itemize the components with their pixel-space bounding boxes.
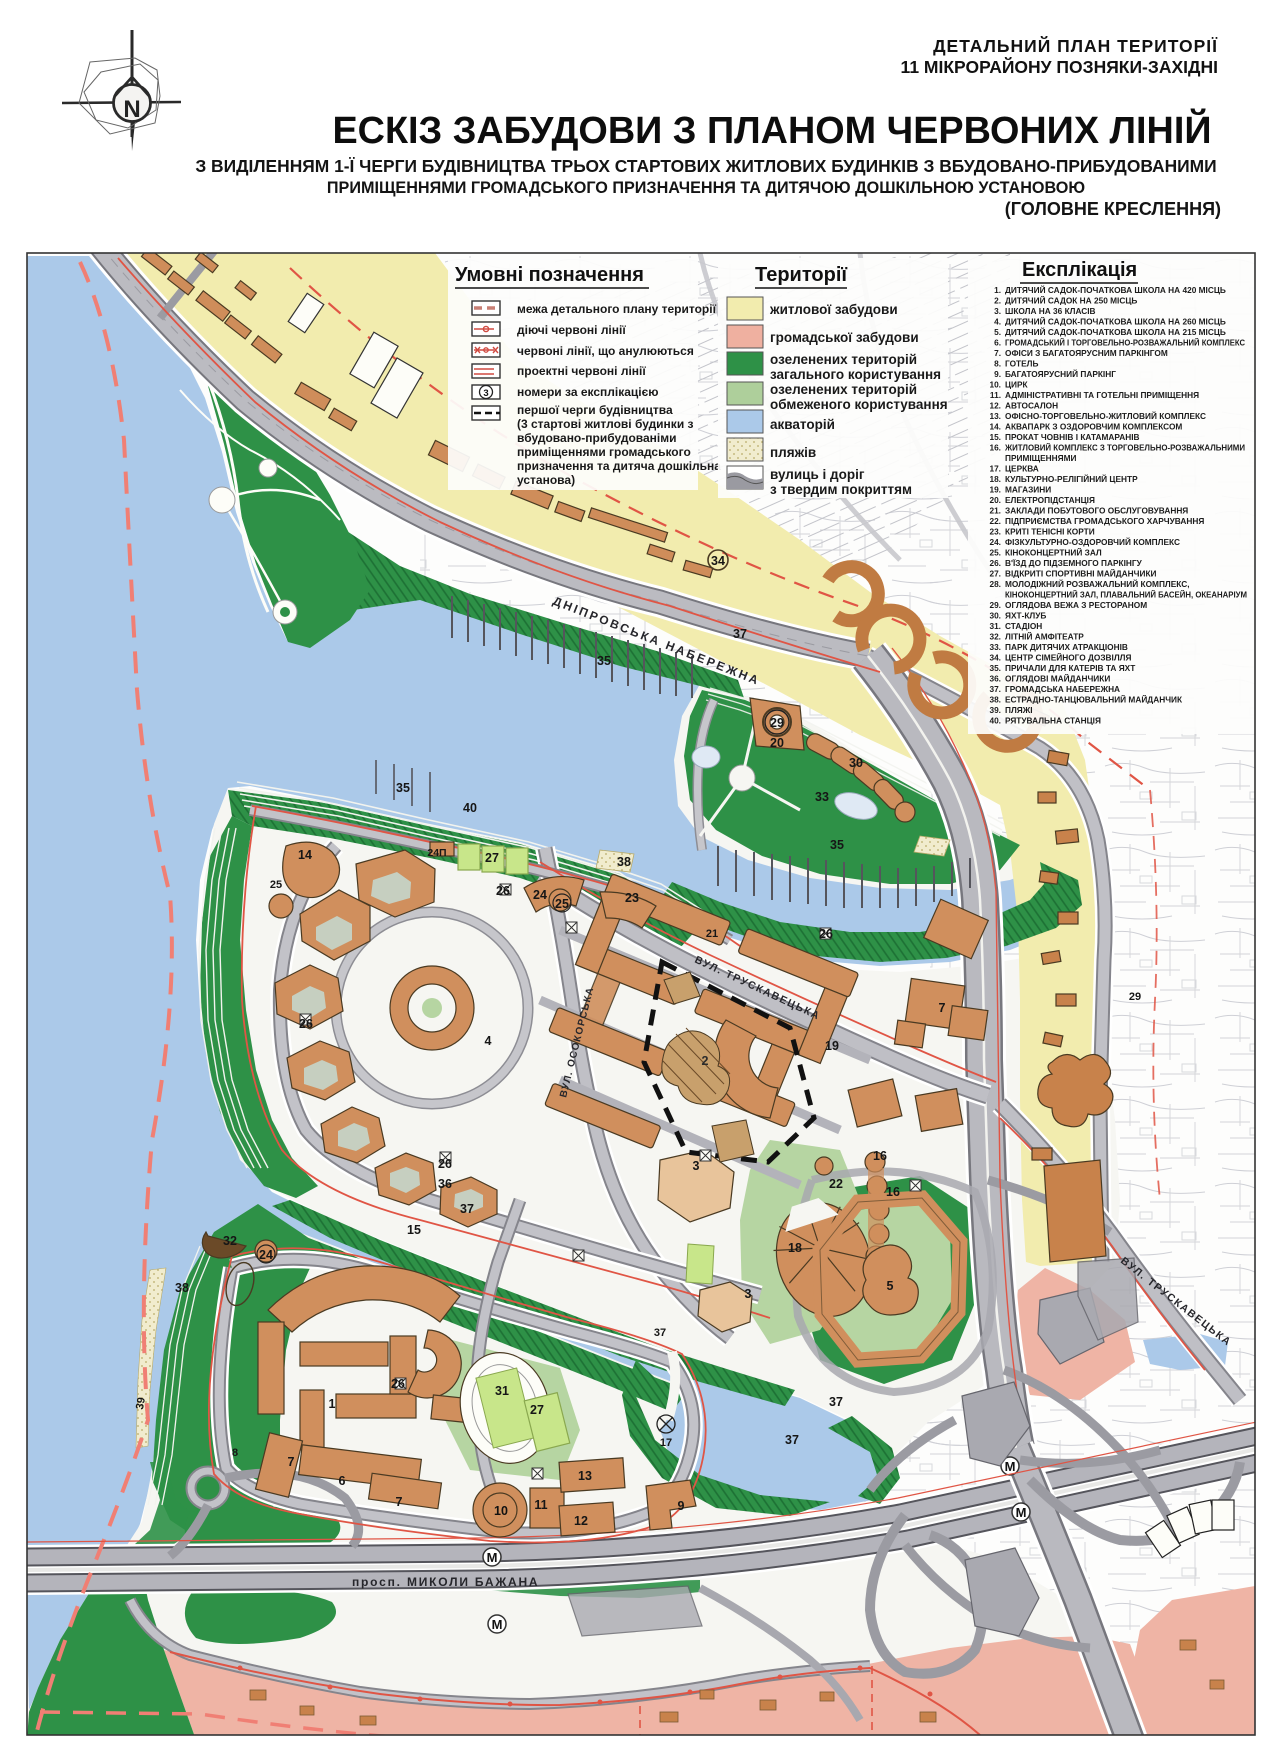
svg-text:22.: 22. [989, 516, 1001, 526]
svg-text:проектні червоні лінії: проектні червоні лінії [517, 364, 646, 378]
svg-text:19.: 19. [989, 485, 1001, 495]
svg-text:25: 25 [270, 879, 282, 891]
svg-text:16: 16 [886, 1185, 900, 1199]
svg-text:32.: 32. [989, 632, 1001, 642]
svg-text:36.: 36. [989, 674, 1001, 684]
svg-text:24П: 24П [427, 847, 446, 859]
svg-text:12: 12 [574, 1514, 588, 1528]
svg-text:діючі червоні лінії: діючі червоні лінії [517, 323, 626, 337]
svg-text:N: N [123, 96, 140, 123]
svg-text:М: М [492, 1617, 503, 1632]
svg-text:ПАРК ДИТЯЧИХ АТРАКЦІОНІВ: ПАРК ДИТЯЧИХ АТРАКЦІОНІВ [1005, 642, 1128, 652]
svg-text:26: 26 [819, 927, 833, 941]
svg-text:34: 34 [711, 554, 725, 568]
svg-text:37: 37 [829, 1395, 843, 1409]
svg-text:21.: 21. [989, 506, 1001, 516]
svg-text:35: 35 [597, 654, 611, 668]
svg-text:31.: 31. [989, 621, 1001, 631]
svg-text:37: 37 [785, 1433, 799, 1447]
svg-text:ШКОЛА НА 36 КЛАСІВ: ШКОЛА НА 36 КЛАСІВ [1005, 306, 1096, 316]
svg-text:27: 27 [530, 1403, 544, 1417]
svg-text:35: 35 [830, 838, 844, 852]
svg-text:В'ЇЗД ДО ПІДЗЕМНОГО ПАРКІНГУ: В'ЇЗД ДО ПІДЗЕМНОГО ПАРКІНГУ [1005, 558, 1143, 568]
svg-text:Експлікація: Експлікація [1022, 259, 1137, 281]
svg-text:8: 8 [232, 1447, 238, 1459]
svg-text:ПЛЯЖІ: ПЛЯЖІ [1005, 705, 1033, 715]
svg-text:24: 24 [533, 888, 547, 902]
svg-text:27: 27 [485, 851, 499, 865]
svg-text:6: 6 [339, 1474, 346, 1488]
svg-text:9.: 9. [994, 369, 1001, 379]
svg-text:21: 21 [706, 928, 718, 940]
svg-text:19: 19 [825, 1039, 839, 1053]
svg-text:3: 3 [745, 1287, 752, 1301]
svg-text:З ВИДІЛЕННЯМ 1-Ї ЧЕРГИ БУДІВНИ: З ВИДІЛЕННЯМ 1-Ї ЧЕРГИ БУДІВНИЦТВА ТРЬОХ… [195, 156, 1216, 176]
svg-text:ДИТЯЧИЙ САДОК НА 250 МІСЦЬ: ДИТЯЧИЙ САДОК НА 250 МІСЦЬ [1005, 295, 1137, 306]
svg-text:7: 7 [288, 1455, 295, 1469]
svg-text:36: 36 [438, 1177, 452, 1191]
svg-text:20.: 20. [989, 495, 1001, 505]
svg-text:Території: Території [755, 264, 847, 286]
svg-text:31: 31 [495, 1384, 509, 1398]
svg-text:загального користування: загального користування [770, 367, 941, 382]
svg-text:4: 4 [485, 1034, 492, 1048]
svg-text:МАГАЗИНИ: МАГАЗИНИ [1005, 485, 1051, 495]
svg-text:КУЛЬТУРНО-РЕЛІГІЙНИЙ ЦЕНТР: КУЛЬТУРНО-РЕЛІГІЙНИЙ ЦЕНТР [1005, 473, 1138, 484]
svg-text:з твердим покриттям: з твердим покриттям [770, 482, 912, 497]
svg-text:ПРОКАТ ЧОВНІВ І КАТАМАРАНІВ: ПРОКАТ ЧОВНІВ І КАТАМАРАНІВ [1005, 432, 1140, 442]
svg-text:7.: 7. [994, 348, 1001, 358]
svg-text:12.: 12. [989, 401, 1001, 411]
svg-text:35: 35 [396, 781, 410, 795]
svg-text:32: 32 [223, 1234, 237, 1248]
svg-text:вулиць і доріг: вулиць і доріг [770, 467, 865, 482]
svg-text:М: М [1016, 1505, 1027, 1520]
svg-text:ПРИЧАЛИ ДЛЯ КАТЕРІВ ТА ЯХТ: ПРИЧАЛИ ДЛЯ КАТЕРІВ ТА ЯХТ [1005, 663, 1135, 673]
svg-text:ОФІСИ З БАГАТОЯРУСНИМ ПАРКІНГО: ОФІСИ З БАГАТОЯРУСНИМ ПАРКІНГОМ [1005, 348, 1168, 358]
svg-text:ЗАКЛАДИ ПОБУТОВОГО ОБСЛУГОВУВА: ЗАКЛАДИ ПОБУТОВОГО ОБСЛУГОВУВАННЯ [1005, 506, 1188, 516]
svg-text:ЕЛЕКТРОПІДСТАНЦІЯ: ЕЛЕКТРОПІДСТАНЦІЯ [1005, 495, 1095, 505]
svg-text:ПРИМІЩЕННЯМИ: ПРИМІЩЕННЯМИ [1005, 453, 1077, 463]
svg-text:ЦЕНТР СІМЕЙНОГО ДОЗВІЛЛЯ: ЦЕНТР СІМЕЙНОГО ДОЗВІЛЛЯ [1005, 652, 1131, 663]
svg-text:11.: 11. [990, 390, 1001, 400]
svg-text:40: 40 [463, 801, 477, 815]
svg-text:ПРИМІЩЕННЯМИ ГРОМАДСЬКОГО ПРИЗ: ПРИМІЩЕННЯМИ ГРОМАДСЬКОГО ПРИЗНАЧЕННЯ ТА… [327, 179, 1086, 197]
svg-text:приміщеннями громадського: приміщеннями громадського [517, 445, 691, 459]
svg-text:14: 14 [298, 848, 312, 862]
svg-text:11 МІКРОРАЙОНУ ПОЗНЯКИ-ЗАХІДНІ: 11 МІКРОРАЙОНУ ПОЗНЯКИ-ЗАХІДНІ [901, 56, 1218, 77]
svg-text:3: 3 [483, 388, 488, 399]
svg-text:38: 38 [175, 1281, 189, 1295]
svg-text:23: 23 [625, 891, 639, 905]
svg-text:18.: 18. [989, 474, 1001, 484]
svg-text:28.: 28. [989, 579, 1001, 589]
svg-text:ОГЛЯДОВА ВЕЖА З РЕСТОРАНОМ: ОГЛЯДОВА ВЕЖА З РЕСТОРАНОМ [1005, 600, 1147, 610]
svg-text:33: 33 [815, 790, 829, 804]
svg-text:30.: 30. [989, 611, 1001, 621]
svg-text:(ГОЛОВНЕ КРЕСЛЕННЯ): (ГОЛОВНЕ КРЕСЛЕННЯ) [1005, 199, 1221, 219]
svg-text:установа): установа) [517, 473, 575, 487]
svg-text:ФІЗКУЛЬТУРНО-ОЗДОРОВЧИЙ КОМПЛЕ: ФІЗКУЛЬТУРНО-ОЗДОРОВЧИЙ КОМПЛЕКС [1005, 536, 1180, 547]
svg-text:КІНОКОНЦЕРТНИЙ ЗАЛ, ПЛАВАЛЬНИЙ: КІНОКОНЦЕРТНИЙ ЗАЛ, ПЛАВАЛЬНИЙ БАСЕЙН, О… [1005, 589, 1247, 600]
svg-text:ДИТЯЧИЙ САДОК-ПОЧАТКОВА ШКОЛА: ДИТЯЧИЙ САДОК-ПОЧАТКОВА ШКОЛА НА 420 МІС… [1005, 284, 1226, 295]
svg-text:1.: 1. [994, 285, 1001, 295]
svg-text:26.: 26. [989, 558, 1001, 568]
svg-text:39.: 39. [989, 705, 1001, 715]
svg-text:МОЛОДІЖНИЙ РОЗВАЖАЛЬНИЙ КОМПЛЕ: МОЛОДІЖНИЙ РОЗВАЖАЛЬНИЙ КОМПЛЕКС, [1005, 578, 1190, 589]
svg-text:ДИТЯЧИЙ САДОК-ПОЧАТКОВА ШКОЛА: ДИТЯЧИЙ САДОК-ПОЧАТКОВА ШКОЛА НА 215 МІС… [1005, 326, 1226, 337]
svg-text:7: 7 [396, 1495, 403, 1509]
svg-text:громадської забудови: громадської забудови [770, 330, 919, 345]
svg-text:33.: 33. [989, 642, 1001, 652]
svg-text:18: 18 [788, 1241, 802, 1255]
svg-text:пляжів: пляжів [770, 445, 816, 460]
svg-text:ОФІСНО-ТОРГОВЕЛЬНО-ЖИТЛОВИЙ КО: ОФІСНО-ТОРГОВЕЛЬНО-ЖИТЛОВИЙ КОМПЛЕКС [1005, 410, 1206, 421]
svg-text:6.: 6. [994, 338, 1001, 348]
svg-text:АВТОСАЛОН: АВТОСАЛОН [1005, 401, 1058, 411]
svg-text:39: 39 [134, 1396, 148, 1410]
svg-text:26: 26 [391, 1377, 405, 1391]
svg-text:10.: 10. [989, 380, 1001, 390]
svg-text:29.: 29. [989, 600, 1001, 610]
svg-text:озеленених територій: озеленених територій [770, 352, 917, 367]
svg-text:озеленених територій: озеленених територій [770, 382, 917, 397]
svg-text:26: 26 [438, 1157, 452, 1171]
svg-text:М: М [1005, 1459, 1016, 1474]
svg-text:М: М [487, 1550, 498, 1565]
svg-text:15.: 15. [989, 432, 1001, 442]
svg-text:РЯТУВАЛЬНА СТАНЦІЯ: РЯТУВАЛЬНА СТАНЦІЯ [1005, 716, 1101, 726]
svg-text:26: 26 [299, 1017, 313, 1031]
svg-text:24: 24 [259, 1248, 273, 1262]
svg-text:15: 15 [407, 1223, 421, 1237]
svg-text:14.: 14. [989, 422, 1001, 432]
svg-text:38.: 38. [989, 695, 1001, 705]
svg-text:АКВАПАРК З ОЗДОРОВЧИМ КОМПЛЕКС: АКВАПАРК З ОЗДОРОВЧИМ КОМПЛЕКСОМ [1005, 422, 1182, 432]
svg-text:ЛІТНІЙ АМФІТЕАТР: ЛІТНІЙ АМФІТЕАТР [1005, 631, 1084, 642]
svg-text:37: 37 [654, 1327, 666, 1339]
svg-text:ГРОМАДСЬКИЙ І ТОРГОВЕЛЬНО-РОЗВ: ГРОМАДСЬКИЙ І ТОРГОВЕЛЬНО-РОЗВАЖАЛЬНИЙ К… [1005, 337, 1245, 348]
svg-text:24.: 24. [989, 537, 1001, 547]
svg-text:ПІДПРИЄМСТВА ГРОМАДСЬКОГО ХАРЧ: ПІДПРИЄМСТВА ГРОМАДСЬКОГО ХАРЧУВАННЯ [1005, 516, 1204, 526]
svg-text:29: 29 [1129, 991, 1141, 1003]
svg-text:26: 26 [496, 884, 510, 898]
svg-text:призначення та дитяча дошкільн: призначення та дитяча дошкільна [517, 459, 721, 473]
svg-text:25.: 25. [989, 548, 1001, 558]
svg-text:ГРОМАДСЬКА НАБЕРЕЖНА: ГРОМАДСЬКА НАБЕРЕЖНА [1005, 684, 1120, 694]
svg-text:просп. МИКОЛИ БАЖАНА: просп. МИКОЛИ БАЖАНА [352, 1575, 539, 1589]
svg-text:ЕСТРАДНО-ТАНЦЮВАЛЬНИЙ МАЙДАНЧИ: ЕСТРАДНО-ТАНЦЮВАЛЬНИЙ МАЙДАНЧИК [1005, 694, 1183, 705]
svg-text:ДЕТАЛЬНИЙ ПЛАН ТЕРИТОРІЇ: ДЕТАЛЬНИЙ ПЛАН ТЕРИТОРІЇ [933, 35, 1218, 56]
svg-text:4.: 4. [994, 317, 1001, 327]
svg-text:5.: 5. [994, 327, 1001, 337]
svg-text:16: 16 [873, 1149, 887, 1163]
svg-text:першої черги будівництва: першої черги будівництва [517, 403, 673, 417]
svg-text:27.: 27. [989, 569, 1001, 579]
svg-text:акваторій: акваторій [770, 417, 835, 432]
svg-text:7: 7 [939, 1001, 946, 1015]
svg-text:ДИТЯЧИЙ САДОК-ПОЧАТКОВА ШКОЛА: ДИТЯЧИЙ САДОК-ПОЧАТКОВА ШКОЛА НА 260 МІС… [1005, 316, 1226, 327]
svg-text:37: 37 [460, 1202, 474, 1216]
svg-text:червоні лінії, що анулюються: червоні лінії, що анулюються [517, 344, 694, 358]
svg-text:1: 1 [329, 1397, 336, 1411]
svg-text:2: 2 [702, 1054, 709, 1068]
svg-text:обмеженого користування: обмеженого користування [770, 397, 948, 412]
svg-text:20: 20 [770, 736, 784, 750]
svg-text:Умовні позначення: Умовні позначення [455, 264, 644, 286]
svg-text:40.: 40. [989, 716, 1001, 726]
svg-text:13.: 13. [989, 411, 1001, 421]
svg-text:межа детального плану територі: межа детального плану території [517, 302, 717, 316]
svg-text:3: 3 [693, 1159, 700, 1173]
svg-text:БАГАТОЯРУСНИЙ ПАРКІНГ: БАГАТОЯРУСНИЙ ПАРКІНГ [1005, 368, 1116, 379]
svg-text:КІНОКОНЦЕРТНИЙ ЗАЛ: КІНОКОНЦЕРТНИЙ ЗАЛ [1005, 547, 1102, 558]
svg-text:37.: 37. [989, 684, 1001, 694]
svg-text:3.: 3. [994, 306, 1001, 316]
svg-text:номери за експлікацією: номери за експлікацією [517, 385, 659, 399]
svg-text:17: 17 [660, 1437, 672, 1449]
svg-text:10: 10 [494, 1504, 508, 1518]
svg-text:13: 13 [578, 1469, 592, 1483]
svg-text:17.: 17. [989, 464, 1001, 474]
svg-text:ГОТЕЛЬ: ГОТЕЛЬ [1005, 359, 1038, 369]
svg-text:житлової забудови: житлової забудови [769, 302, 898, 317]
svg-text:ОГЛЯДОВІ МАЙДАНЧИКИ: ОГЛЯДОВІ МАЙДАНЧИКИ [1005, 673, 1110, 684]
svg-text:АДМІНІСТРАТИВНІ ТА ГОТЕЛЬНІ ПР: АДМІНІСТРАТИВНІ ТА ГОТЕЛЬНІ ПРИМІЩЕННЯ [1005, 390, 1199, 400]
svg-text:9: 9 [678, 1499, 685, 1513]
svg-text:34.: 34. [989, 653, 1001, 663]
svg-text:вбудовано-прибудованіми: вбудовано-прибудованіми [517, 431, 677, 445]
svg-text:СТАДІОН: СТАДІОН [1005, 621, 1042, 631]
svg-text:ВІДКРИТІ СПОРТИВНІ МАЙДАНЧИКИ: ВІДКРИТІ СПОРТИВНІ МАЙДАНЧИКИ [1005, 568, 1157, 579]
svg-text:30: 30 [849, 756, 863, 770]
svg-text:29: 29 [770, 716, 784, 730]
svg-text:37: 37 [733, 627, 747, 641]
svg-text:23.: 23. [989, 527, 1001, 537]
svg-text:16.: 16. [989, 443, 1001, 453]
svg-text:11: 11 [534, 1498, 547, 1512]
svg-text:ЖИТЛОВИЙ КОМПЛЕКС З ТОРГОВЕЛЬН: ЖИТЛОВИЙ КОМПЛЕКС З ТОРГОВЕЛЬНО-РОЗВАЖАЛ… [1004, 442, 1245, 453]
svg-text:35.: 35. [989, 663, 1001, 673]
svg-text:8.: 8. [994, 359, 1001, 369]
svg-text:38: 38 [617, 855, 631, 869]
svg-text:25: 25 [555, 897, 569, 911]
svg-text:ЕСКІЗ ЗАБУДОВИ З ПЛАНОМ ЧЕРВОН: ЕСКІЗ ЗАБУДОВИ З ПЛАНОМ ЧЕРВОНИХ ЛІНІЙ [332, 109, 1211, 152]
svg-text:ЦЕРКВА: ЦЕРКВА [1005, 464, 1039, 474]
svg-text:ЦИРК: ЦИРК [1005, 380, 1029, 390]
svg-text:(3 стартові житлові будинки з: (3 стартові житлові будинки з [517, 417, 694, 431]
svg-text:2.: 2. [994, 296, 1001, 306]
svg-text:ЯХТ-КЛУБ: ЯХТ-КЛУБ [1005, 611, 1046, 621]
svg-text:КРИТІ ТЕНІСНІ КОРТИ: КРИТІ ТЕНІСНІ КОРТИ [1005, 527, 1095, 537]
svg-text:5: 5 [887, 1279, 894, 1293]
svg-text:22: 22 [829, 1177, 843, 1191]
